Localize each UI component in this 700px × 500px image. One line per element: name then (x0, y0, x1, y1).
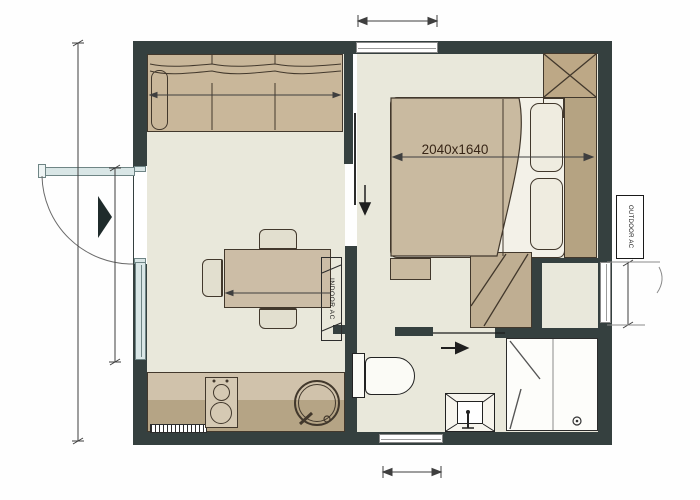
entry-door-leaf (45, 167, 135, 176)
wardrobe (543, 53, 597, 98)
kitchen-sink-inner (298, 384, 336, 422)
bed-headboard (564, 97, 597, 258)
indoor-ac-unit: INDOOR AC (321, 257, 342, 341)
bathroom-sliding-door-leaf (395, 327, 433, 336)
bedroom-sliding-door-leaf (354, 113, 356, 205)
entry-door-handle (38, 164, 46, 178)
dining-chair-left (202, 259, 223, 297)
window-mullion (381, 439, 441, 440)
entry-door-swing-arc (42, 176, 133, 264)
bed-bench (390, 258, 431, 280)
closet (470, 252, 532, 328)
dining-table (224, 249, 331, 308)
floor-plan-canvas: INDOOR AC OUTDOOR AC (0, 0, 700, 500)
wall-nook-left (532, 258, 542, 334)
outdoor-ac-label: OUTDOOR AC (627, 205, 633, 248)
leader-curve (657, 267, 662, 293)
window-top (356, 42, 438, 53)
bed-dimension-label: 2040x1640 (398, 142, 512, 157)
cooktop-burner-small (213, 384, 230, 401)
entry-jamb-top (134, 166, 146, 172)
washbasin-inner (457, 401, 483, 424)
shower-enclosure (506, 338, 598, 431)
dining-chair-bottom (259, 308, 297, 329)
dining-chair-top (259, 229, 297, 250)
sofa-armrest (151, 70, 168, 130)
cooktop-burner-large (210, 402, 232, 424)
wall-bathroom-top (495, 328, 598, 338)
drainboard-hatch (150, 424, 207, 433)
entry-direction-marker (98, 196, 112, 238)
wall-bottom (133, 432, 612, 445)
window-mullion (606, 264, 607, 321)
toilet-tank (352, 353, 365, 398)
entry-opening (134, 166, 147, 264)
wall-right (598, 41, 612, 445)
wall-partition-upper (344, 54, 353, 164)
indoor-ac-label: INDOOR AC (328, 278, 335, 320)
pillow-2 (530, 178, 563, 250)
wall-nook-top (542, 258, 598, 263)
window-bottom (379, 434, 443, 443)
sofa (147, 54, 343, 132)
window-mullion (141, 265, 142, 357)
toilet-bowl (365, 357, 415, 395)
wall-partition-lower (345, 246, 357, 432)
window-mullion (358, 48, 436, 49)
window-left (135, 262, 146, 360)
outdoor-ac-unit: OUTDOOR AC (616, 195, 644, 259)
window-right (600, 262, 611, 323)
pillow-1 (530, 103, 563, 172)
